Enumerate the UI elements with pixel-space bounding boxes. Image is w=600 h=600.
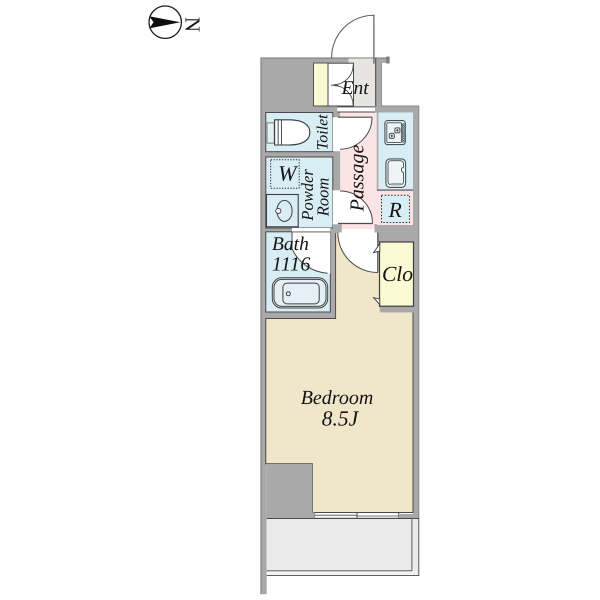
svg-text:N: N [181, 17, 205, 32]
svg-text:1116: 1116 [272, 254, 311, 276]
svg-text:Passage: Passage [347, 145, 369, 213]
svg-text:8.5J: 8.5J [322, 406, 360, 430]
svg-text:Ent: Ent [341, 78, 370, 99]
svg-text:W: W [278, 161, 298, 186]
svg-text:Toilet: Toilet [314, 114, 331, 150]
svg-text:R: R [388, 198, 402, 222]
svg-text:Clo: Clo [382, 262, 413, 286]
svg-text:Room: Room [314, 178, 333, 218]
svg-text:Bath: Bath [272, 234, 309, 255]
